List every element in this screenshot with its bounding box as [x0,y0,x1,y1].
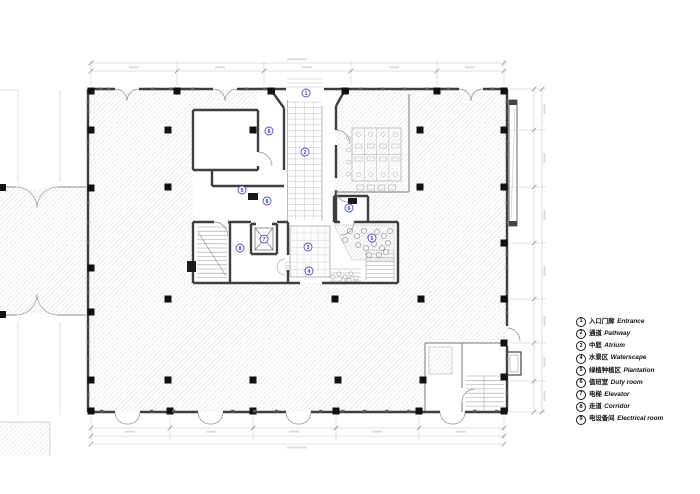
legend-label-en: Plantation [623,368,654,374]
room-label-plantation: 5 [368,234,376,242]
room-label-corridor-2: 8 [263,197,271,205]
room-label-pathway: 2 [301,148,309,156]
svg-text:8: 8 [239,246,242,252]
room-label-atrium: 3 [304,243,312,251]
legend-item: 6值班室Duty room [576,377,700,389]
room-label-corridor-3: 8 [236,244,244,252]
legend-item: 3中庭Atrium [576,340,700,352]
legend-circled-number: 5 [576,366,586,376]
svg-text:5: 5 [371,236,374,242]
east-facade-elements [507,100,521,375]
legend-label-zh: 中庭 [589,343,602,349]
legend-item: 4水景区Waterscape [576,353,700,365]
legend-label-zh: 入口门廊 [589,319,615,325]
legend-label-en: Entrance [617,319,644,325]
legend-label-en: Waterscape [611,355,647,361]
svg-text:8: 8 [266,199,269,205]
legend-item: 8走道Corridor [576,401,700,413]
svg-text:1: 1 [305,91,308,97]
legend-label-zh: 电梯 [589,392,602,398]
room-label-corridor-1: 8 [265,127,273,135]
legend-circled-number: 8 [576,402,586,412]
legend-circled-number: 2 [576,329,586,339]
legend-label-zh: 值班室 [589,380,608,386]
room-label-duty-room: 6 [345,204,353,212]
room-label-waterscape: 4 [305,267,313,275]
legend-circled-number: 3 [576,341,586,351]
room-label-elevator: 7 [260,235,268,243]
legend-label-en: Atrium [604,343,625,349]
legend: 1入口门廊Entrance 2通道Pathway 3中庭Atrium 4水景区W… [576,316,700,426]
legend-label-en: Elevator [604,392,629,398]
legend-label-zh: 电设备间 [589,416,615,422]
legend-item: 5绿植种植区Plantation [576,365,700,377]
svg-text:2: 2 [304,150,307,156]
legend-label-en: Electrical room [617,416,663,422]
legend-item: 7电梯Elevator [576,389,700,401]
legend-item: 2通道Pathway [576,328,700,340]
svg-text:9: 9 [241,188,244,194]
legend-label-en: Duty room [611,380,643,386]
svg-text:6: 6 [348,206,351,212]
legend-label-zh: 通道 [589,331,602,337]
legend-circled-number: 1 [576,317,586,327]
legend-item: 9电设备间Electrical room [576,414,700,426]
legend-circled-number: 9 [576,415,586,425]
svg-text:4: 4 [308,269,311,275]
svg-text:3: 3 [307,245,310,251]
legend-label-zh: 水景区 [589,355,608,361]
legend-label-en: Corridor [604,404,630,410]
room-label-entrance: 1 [302,89,310,97]
room-label-electrical: 9 [238,186,246,194]
floor-plan-page: 1 2 3 4 5 6 7 8 8 8 9 1入口门廊Entrance 2通道P… [0,0,700,494]
legend-label-zh: 走道 [589,404,602,410]
legend-label-en: Pathway [604,331,630,337]
legend-circled-number: 6 [576,378,586,388]
legend-circled-number: 4 [576,354,586,364]
svg-text:8: 8 [268,129,271,135]
legend-item: 1入口门廊Entrance [576,316,700,328]
legend-label-zh: 绿植种植区 [589,368,621,374]
legend-circled-number: 7 [576,390,586,400]
svg-text:7: 7 [263,237,266,243]
